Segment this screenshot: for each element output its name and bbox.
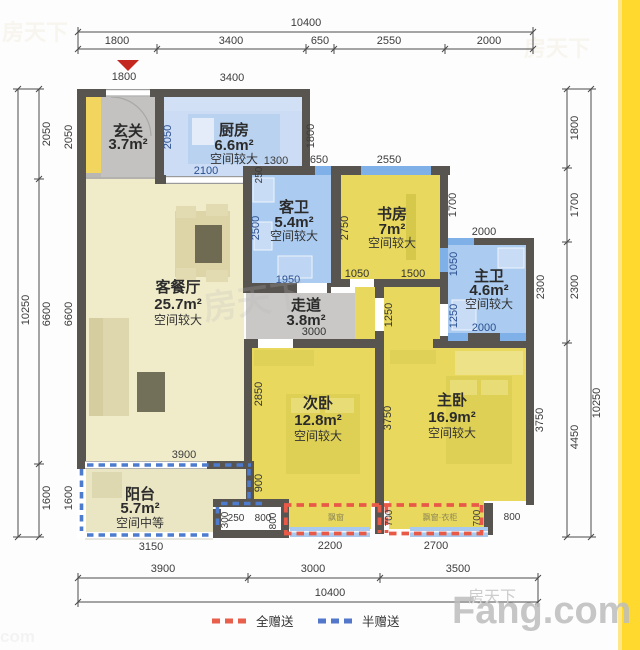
svg-text:1600: 1600 (63, 486, 75, 510)
svg-text:800: 800 (504, 512, 521, 523)
svg-text:1050: 1050 (448, 252, 460, 276)
svg-text:3900: 3900 (151, 563, 175, 575)
svg-text:1250: 1250 (383, 303, 395, 327)
svg-text:2050: 2050 (162, 125, 174, 149)
svg-text:1800: 1800 (569, 116, 581, 140)
svg-text:1800: 1800 (305, 124, 317, 148)
svg-text:1700: 1700 (447, 193, 459, 217)
svg-text:1050: 1050 (345, 268, 369, 280)
svg-text:6600: 6600 (41, 302, 53, 326)
svg-text:2850: 2850 (253, 382, 265, 406)
svg-text:2550: 2550 (377, 35, 401, 47)
svg-text:250: 250 (254, 166, 265, 183)
svg-text:800: 800 (268, 512, 279, 529)
svg-text:300: 300 (220, 511, 231, 528)
svg-text:16.9m²: 16.9m² (428, 409, 476, 426)
svg-text:650: 650 (310, 154, 328, 166)
svg-text:10400: 10400 (315, 587, 346, 599)
svg-text:1600: 1600 (41, 486, 53, 510)
svg-text:主卧: 主卧 (437, 391, 467, 409)
svg-text:2000: 2000 (477, 35, 501, 47)
svg-text:6600: 6600 (63, 302, 75, 326)
svg-text:3150: 3150 (139, 541, 163, 553)
svg-text:2550: 2550 (377, 154, 401, 166)
svg-text:3.7m²: 3.7m² (108, 136, 147, 153)
svg-text:空间较大: 空间较大 (270, 228, 318, 243)
svg-text:900: 900 (253, 474, 265, 492)
svg-text:空间较大: 空间较大 (465, 296, 513, 311)
svg-text:25.7m²: 25.7m² (154, 296, 202, 313)
svg-text:次卧: 次卧 (303, 394, 333, 412)
svg-text:2000: 2000 (472, 322, 496, 334)
svg-text:飘窗·衣柜: 飘窗·衣柜 (423, 512, 458, 522)
svg-text:10250: 10250 (591, 388, 603, 419)
svg-text:3750: 3750 (382, 406, 394, 430)
svg-text:空间较大: 空间较大 (210, 151, 258, 166)
svg-text:10400: 10400 (291, 17, 322, 29)
svg-text:10250: 10250 (20, 295, 32, 326)
svg-text:2100: 2100 (194, 165, 218, 177)
svg-text:2750: 2750 (339, 216, 351, 240)
svg-text:Fang.com: Fang.com (452, 590, 631, 632)
svg-text:3000: 3000 (301, 563, 325, 575)
svg-text:空间较大: 空间较大 (154, 312, 202, 327)
svg-text:空间较大: 空间较大 (294, 428, 342, 443)
svg-text:1800: 1800 (105, 35, 129, 47)
svg-text:1800: 1800 (112, 71, 136, 83)
svg-text:空间较大: 空间较大 (428, 425, 476, 440)
svg-text:700: 700 (472, 509, 483, 526)
svg-text:3400: 3400 (220, 72, 244, 84)
svg-text:com: com (0, 627, 35, 646)
svg-text:飘窗: 飘窗 (328, 512, 344, 522)
svg-text:2500: 2500 (250, 216, 262, 240)
svg-text:3500: 3500 (446, 563, 470, 575)
svg-text:5.7m²: 5.7m² (120, 500, 159, 517)
svg-text:3400: 3400 (219, 35, 243, 47)
svg-text:12.8m²: 12.8m² (294, 412, 342, 429)
svg-text:空间中等: 空间中等 (116, 515, 164, 530)
svg-text:4450: 4450 (569, 425, 581, 449)
svg-text:1700: 1700 (569, 193, 581, 217)
svg-text:2700: 2700 (424, 540, 448, 552)
svg-text:2300: 2300 (569, 275, 581, 299)
svg-text:1300: 1300 (264, 155, 288, 167)
svg-text:3750: 3750 (534, 408, 546, 432)
svg-text:房天下: 房天下 (2, 20, 68, 45)
svg-text:3900: 3900 (172, 449, 196, 461)
svg-text:700: 700 (384, 509, 395, 526)
svg-text:2000: 2000 (472, 226, 496, 238)
svg-text:2200: 2200 (318, 540, 342, 552)
svg-text:空间较大: 空间较大 (368, 235, 416, 250)
svg-text:1500: 1500 (401, 268, 425, 280)
svg-text:半赠送: 半赠送 (362, 614, 400, 629)
svg-text:2050: 2050 (63, 125, 75, 149)
svg-text:3000: 3000 (302, 326, 326, 338)
svg-text:650: 650 (311, 35, 329, 47)
svg-text:全赠送: 全赠送 (256, 614, 294, 629)
svg-text:客餐厅: 客餐厅 (154, 278, 200, 296)
svg-text:2050: 2050 (41, 122, 53, 146)
svg-text:1250: 1250 (448, 304, 460, 328)
svg-text:2300: 2300 (535, 275, 547, 299)
